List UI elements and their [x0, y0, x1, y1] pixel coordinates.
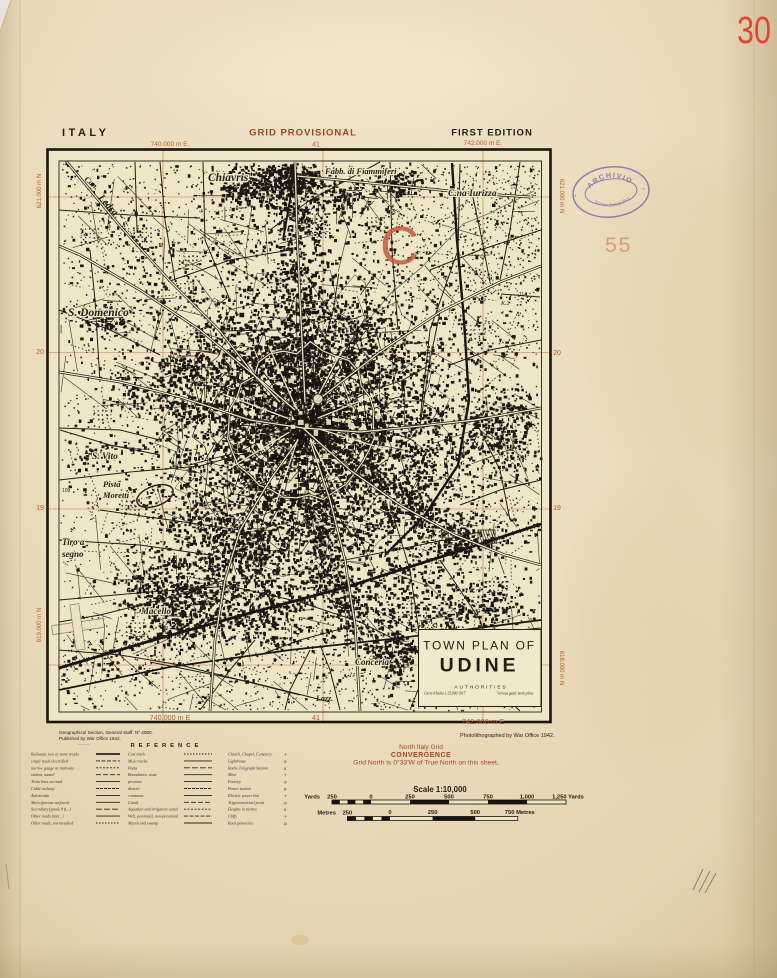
svg-text:narrow gauge or tramway: narrow gauge or tramway: [31, 765, 74, 770]
svg-text:district: district: [128, 786, 140, 791]
svg-text:K.2: K.2: [500, 301, 510, 307]
svg-text:commune: commune: [128, 793, 144, 798]
svg-text:30: 30: [737, 10, 771, 52]
svg-text:Moretti: Moretti: [102, 490, 130, 500]
svg-text:19: 19: [36, 505, 44, 512]
svg-text:Tram lines on road: Tram lines on road: [31, 779, 63, 784]
svg-text:Power station: Power station: [227, 786, 251, 791]
svg-text:AUTHORITIES: AUTHORITIES: [454, 685, 507, 691]
svg-text:Mine: Mine: [227, 772, 237, 777]
svg-text:province: province: [127, 779, 142, 784]
svg-text:742.000 m E: 742.000 m E: [462, 717, 505, 726]
svg-text:S. Vito: S. Vito: [92, 452, 118, 462]
svg-text:single track electrified: single track electrified: [31, 758, 69, 763]
svg-text:Aqueduct and irrigation canal: Aqueduct and irrigation canal: [127, 807, 179, 812]
svg-text:segno: segno: [61, 549, 84, 559]
svg-text:Published by War Office 19: Published by War Office 1942.: [59, 736, 121, 741]
svg-text:740.000 m E.: 740.000 m E.: [151, 141, 190, 148]
svg-text:41: 41: [312, 142, 320, 149]
svg-text:0: 0: [388, 810, 391, 816]
svg-text:55: 55: [605, 233, 632, 257]
svg-text:CONVERGENCE: CONVERGENCE: [391, 752, 451, 759]
svg-text:Trigonometrical point: Trigonometrical point: [228, 800, 265, 805]
svg-text:Heights in metres: Heights in metres: [227, 807, 257, 812]
svg-text:Yards: Yards: [304, 795, 320, 801]
svg-text:Mule tracks: Mule tracks: [127, 758, 148, 763]
svg-text:621.000 m N: 621.000 m N: [558, 179, 564, 213]
svg-text:740.000 m E: 740.000 m E: [150, 713, 191, 722]
svg-text:20: 20: [36, 349, 44, 356]
svg-text:Paths: Paths: [127, 765, 138, 770]
svg-text:GRID PROVISIONAL: GRID PROVISIONAL: [249, 128, 357, 139]
svg-text:750 Metres: 750 Metres: [505, 810, 535, 816]
svg-text:Tiro a: Tiro a: [62, 537, 85, 547]
svg-text:Pista: Pista: [103, 479, 121, 489]
svg-text:Macello: Macello: [140, 606, 171, 616]
svg-text:FIRST EDITION: FIRST EDITION: [451, 128, 533, 139]
svg-text:Grid North is 0°33'W of True N: Grid North is 0°33'W of True North on th…: [353, 759, 499, 767]
svg-text:110: 110: [352, 379, 360, 385]
svg-text:619.000 m N: 619.000 m N: [37, 608, 43, 642]
svg-text:S. Domenico: S. Domenico: [68, 307, 129, 319]
svg-text:Autostrada: Autostrada: [30, 793, 49, 798]
svg-text:Lazz.: Lazz.: [315, 694, 333, 703]
svg-text:Aquileia: Aquileia: [421, 534, 446, 542]
svg-text:618.000 m N: 618.000 m N: [558, 651, 564, 685]
svg-text:Cable railway: Cable railway: [31, 786, 54, 791]
svg-text:Conceria: Conceria: [355, 657, 390, 667]
svg-text:20: 20: [553, 350, 561, 357]
svg-text:1,000: 1,000: [520, 795, 535, 801]
svg-text:0: 0: [369, 795, 372, 801]
svg-text:Geographical Section, General: Geographical Section, General Staff. Nº …: [59, 730, 153, 735]
svg-text:+: +: [284, 793, 287, 798]
svg-text:103: 103: [435, 560, 444, 566]
svg-text:Metres: Metres: [317, 811, 336, 817]
svg-text:R E F E R E N C E: R E F E R E N C E: [130, 743, 199, 749]
svg-text:500: 500: [444, 795, 454, 801]
svg-text:500: 500: [470, 810, 480, 816]
svg-text:+: +: [284, 814, 287, 819]
svg-text:742.000 m E.: 742.000 m E.: [464, 140, 503, 147]
svg-text:250: 250: [428, 810, 438, 816]
svg-text:TOWN PLAN OF: TOWN PLAN OF: [423, 639, 536, 653]
svg-text:250: 250: [405, 795, 415, 801]
svg-text:750: 750: [483, 795, 493, 801]
svg-text:19: 19: [553, 505, 561, 512]
svg-text:Electric power line: Electric power line: [227, 793, 260, 798]
svg-text:114: 114: [519, 292, 527, 298]
svg-text:109: 109: [62, 488, 71, 494]
svg-text:41: 41: [312, 713, 320, 722]
svg-text:Marsh and swamp: Marsh and swamp: [127, 821, 158, 826]
svg-text:Main (porous surfaces): Main (porous surfaces): [30, 800, 70, 805]
svg-text:North Italy Grid: North Italy Grid: [399, 744, 443, 751]
svg-text:ITALY: ITALY: [62, 127, 109, 139]
svg-text:250: 250: [327, 795, 337, 801]
svg-text:621.000 m N: 621.000 m N: [37, 174, 43, 208]
svg-text:Photolithographed by War Of: Photolithographed by War Office 1942.: [460, 733, 555, 739]
svg-text:+: +: [284, 752, 287, 757]
svg-text:Radio Telegraph Station: Radio Telegraph Station: [227, 765, 268, 770]
svg-text:Cart track: Cart track: [128, 752, 145, 757]
svg-text:Scale 1:10,000: Scale 1:10,000: [413, 785, 467, 794]
svg-text:Various guide book plans: Various guide book plans: [497, 692, 534, 696]
svg-text:Cliffs: Cliffs: [228, 814, 237, 819]
svg-text:Chiavris: Chiavris: [208, 172, 249, 184]
svg-text:UDINE: UDINE: [440, 655, 520, 677]
svg-text:Other roads (min...): Other roads (min...): [31, 814, 64, 819]
svg-text:Lighthouse: Lighthouse: [227, 758, 246, 763]
svg-text:1,250 Yards: 1,250 Yards: [552, 795, 584, 801]
svg-text:Factory: Factory: [227, 779, 241, 784]
svg-text:+: +: [284, 773, 287, 778]
svg-text:~~~~~: ~~~~~: [78, 742, 90, 747]
svg-text:Fabb. di Fiammiferi: Fabb. di Fiammiferi: [324, 166, 397, 176]
svg-text:Canal: Canal: [128, 800, 139, 805]
svg-text:C.na Iurizza: C.na Iurizza: [448, 189, 497, 199]
svg-text:117: 117: [300, 183, 308, 189]
svg-text:Rock pinnacles: Rock pinnacles: [227, 821, 253, 826]
svg-text:C: C: [380, 216, 419, 276]
svg-text:250: 250: [343, 811, 353, 817]
